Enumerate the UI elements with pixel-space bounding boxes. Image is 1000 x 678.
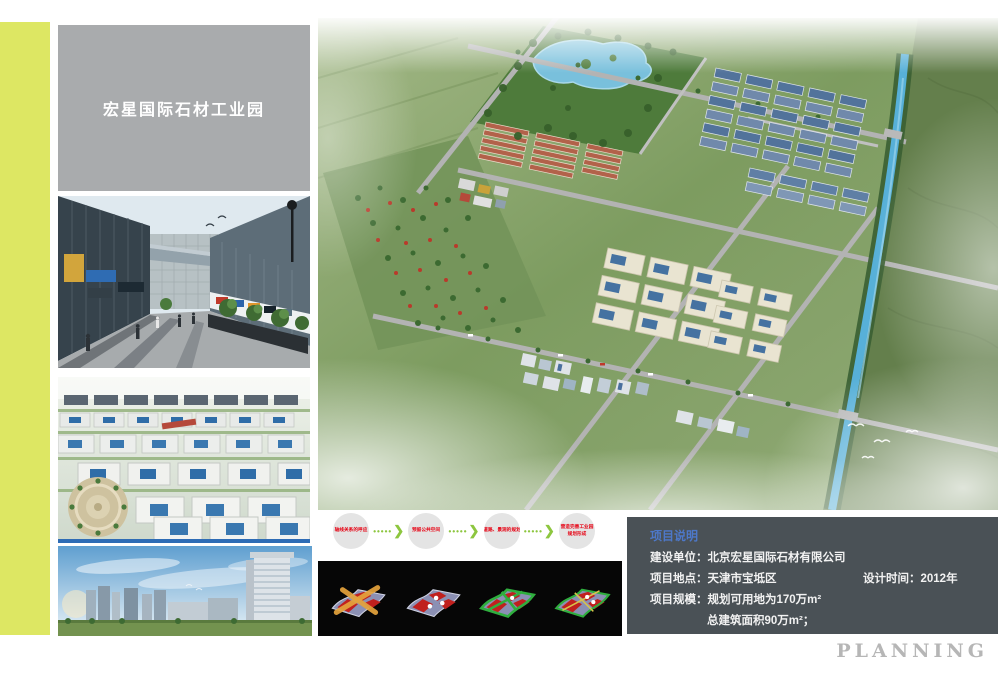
photo-street-view <box>58 196 310 368</box>
flow-arrow-icon: •••••❯ <box>449 523 480 539</box>
scale-label: 项目规模： <box>650 594 708 606</box>
flow-step-4: 营造完善工业园 规划形成 <box>559 513 595 549</box>
flow-step-4-label: 营造完善工业园 <box>561 524 594 530</box>
industrial-aerial-art <box>58 377 310 543</box>
concept-diagram-axis-cross <box>324 568 392 630</box>
street-view-art <box>58 196 310 368</box>
location-value: 天津市宝坻区 <box>708 573 777 585</box>
project-row-developer: 建设单位：北京宏星国际石材有限公司 <box>650 548 998 569</box>
skyline-art <box>58 546 312 636</box>
flow-step-1-label: 轴线关系的呼应 <box>335 528 368 534</box>
flow-step-3-label: 道路、景观的规划 <box>484 528 520 534</box>
developer-label: 建设单位： <box>650 552 708 564</box>
floor-area-value: 总建筑面积90万m²； <box>707 615 814 627</box>
concept-diagram-green-network <box>473 568 541 630</box>
flow-step-2: 预留公共空间 <box>408 513 444 549</box>
project-row-scale: 项目规模：规划可用地为170万m² <box>650 590 998 611</box>
photo-city-skyline <box>58 546 312 636</box>
planning-label: PLANNING <box>836 640 988 662</box>
scale-value: 规划可用地为170万m² <box>708 594 822 606</box>
design-time-value: 2012年 <box>921 573 958 585</box>
flow-step-1: 轴线关系的呼应 <box>333 513 369 549</box>
project-info-panel: 项目说明 建设单位：北京宏星国际石材有限公司 项目地点：天津市宝坻区 设计时间：… <box>627 517 998 634</box>
flow-step-2-label: 预留公共空间 <box>412 528 440 534</box>
flow-arrow-icon: •••••❯ <box>524 523 555 539</box>
design-time-label: 设计时间： <box>863 573 921 585</box>
concept-diagram-integrated-plan <box>548 568 616 630</box>
concept-diagram-site-nodes <box>399 568 467 630</box>
project-title: 宏星国际石材工业园 <box>103 96 265 120</box>
project-info-title: 项目说明 <box>650 527 998 544</box>
accent-stripe <box>0 22 50 635</box>
developer-value: 北京宏星国际石材有限公司 <box>708 552 846 564</box>
project-row-floor-area: 总建筑面积90万m²； <box>650 611 998 632</box>
location-label: 项目地点： <box>650 573 708 585</box>
project-row-location: 项目地点：天津市宝坻区 设计时间：2012年 <box>650 569 998 590</box>
photo-industrial-park-aerial <box>58 377 310 543</box>
flow-arrow-icon: •••••❯ <box>373 523 404 539</box>
flow-step-3: 道路、景观的规划 <box>484 513 520 549</box>
concept-diagram-strip <box>318 561 622 636</box>
presentation-board: 宏星国际石材工业园 <box>0 0 1000 678</box>
master-plan-rendering <box>318 18 998 510</box>
project-title-box: 宏星国际石材工业园 <box>58 25 310 191</box>
design-time: 设计时间：2012年 <box>863 569 958 590</box>
design-flow-diagram: 轴线关系的呼应 •••••❯ 预留公共空间 •••••❯ 道路、景观的规划 ••… <box>333 512 595 550</box>
flow-step-4-label2: 规划形成 <box>568 532 587 538</box>
master-plan-art <box>318 18 998 510</box>
